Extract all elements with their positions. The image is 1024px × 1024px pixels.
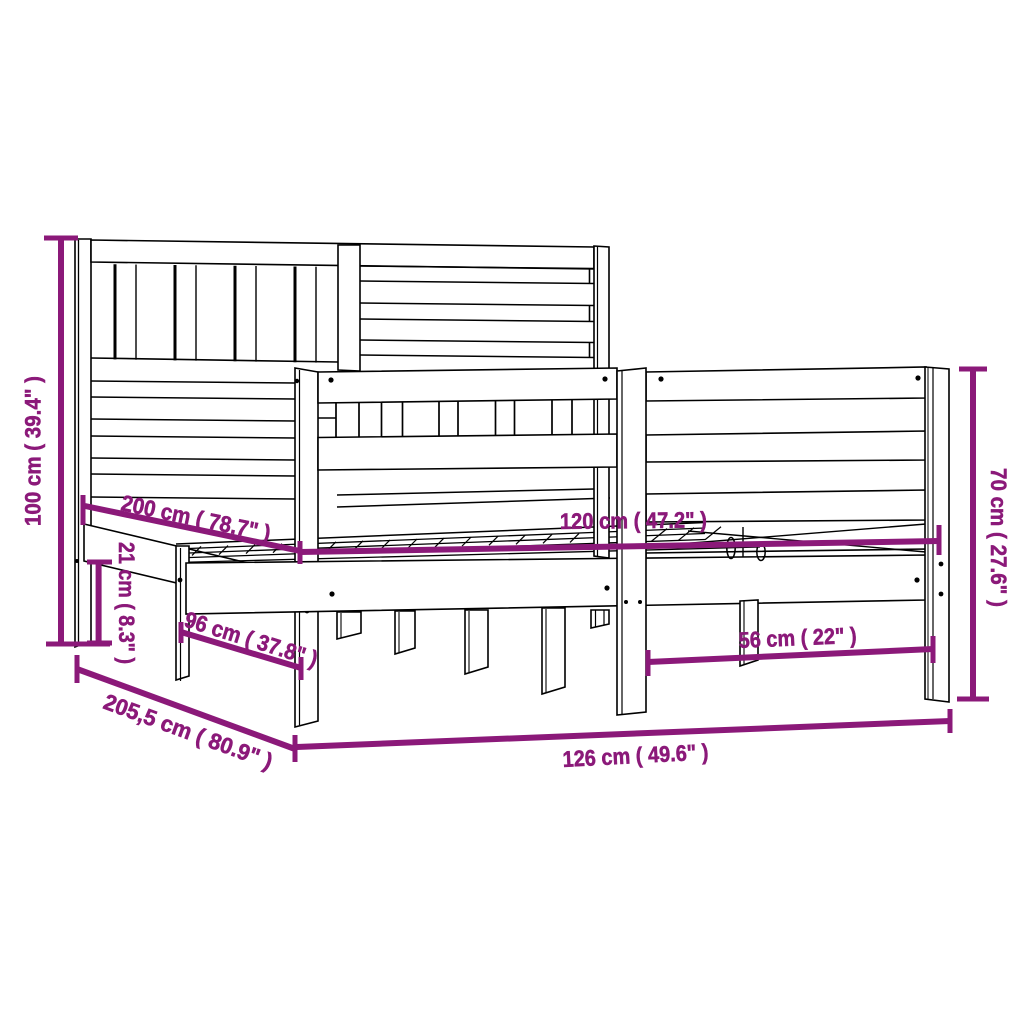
svg-text:100 cm ( 39.4" ): 100 cm ( 39.4" )	[21, 376, 46, 526]
svg-text:56 cm ( 22" ): 56 cm ( 22" )	[738, 623, 857, 653]
svg-text:120 cm ( 47.2" ): 120 cm ( 47.2" )	[560, 507, 707, 534]
svg-text:70 cm ( 27.6" ): 70 cm ( 27.6" )	[986, 468, 1011, 607]
svg-text:21 cm ( 8.3" ): 21 cm ( 8.3" )	[114, 542, 139, 664]
